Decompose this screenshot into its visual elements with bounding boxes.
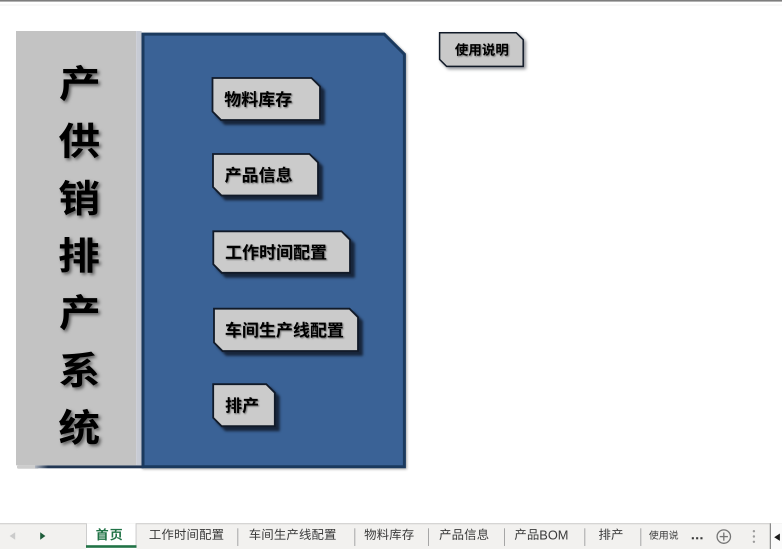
svg-text:BOM: BOM [539, 527, 568, 542]
